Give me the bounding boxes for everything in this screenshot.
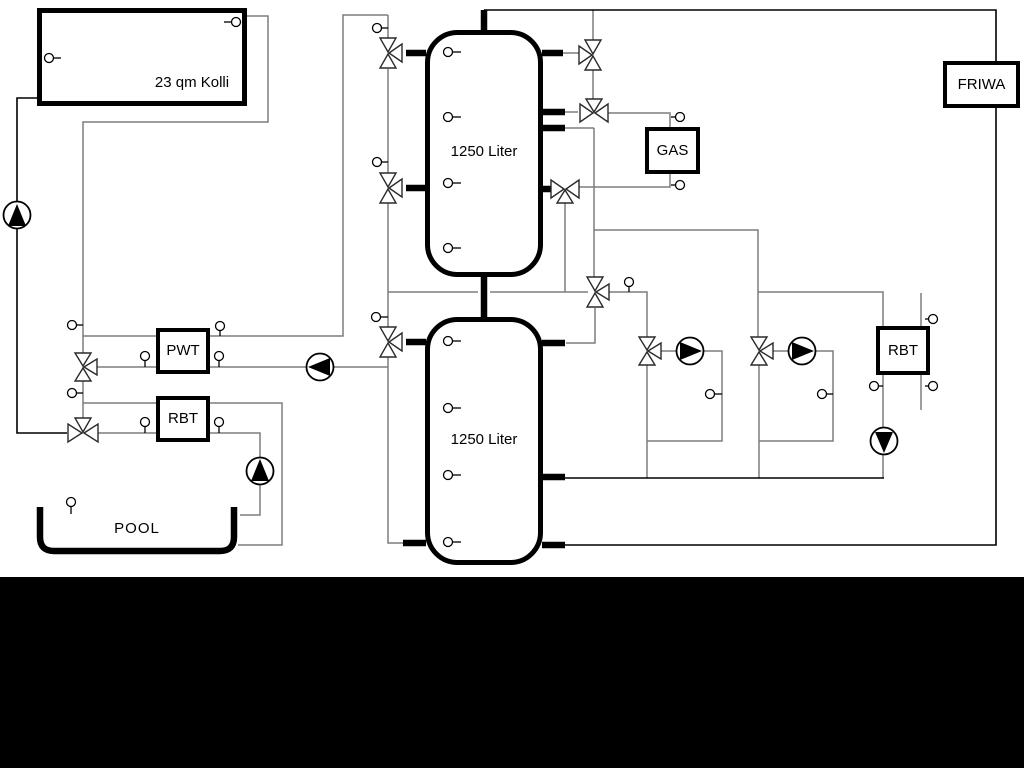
bottom-black-band <box>0 577 1024 768</box>
rbt-dhw-pump <box>871 428 898 455</box>
three-way-valve <box>75 353 97 381</box>
pool-label: POOL <box>77 519 197 539</box>
temperature-sensor <box>671 181 685 190</box>
rbt-pool-label: RBT <box>158 398 208 440</box>
temperature-sensor <box>372 313 389 322</box>
tank1-label: 1250 Liter <box>424 142 544 162</box>
tank1-right-stubs <box>542 53 565 189</box>
temperature-sensor <box>215 418 224 434</box>
solar-supply-pipe <box>17 98 67 433</box>
temperature-sensor <box>216 322 225 337</box>
pool-pump <box>247 458 274 485</box>
tank1-port-links <box>563 53 580 112</box>
three-way-valve <box>579 40 601 70</box>
temperature-sensor <box>141 352 150 368</box>
three-way-valve <box>639 337 661 365</box>
tank2-right-stubs <box>542 343 565 545</box>
three-way-valve <box>551 180 579 203</box>
rbt-dhw-label: RBT <box>878 328 928 373</box>
three-way-valve <box>68 418 98 442</box>
temperature-sensor <box>68 389 84 398</box>
mix-valve-out-line <box>566 292 647 343</box>
friwa-label: FRIWA <box>945 63 1018 106</box>
circuit1-loop <box>647 351 722 478</box>
gas-label: GAS <box>647 129 698 172</box>
temperature-sensor <box>671 113 685 122</box>
tank2-left-stubs <box>403 342 426 543</box>
temperature-sensor <box>141 418 150 434</box>
temperature-sensor <box>68 321 84 330</box>
tank2-label: 1250 Liter <box>424 430 544 450</box>
tank2-charge-pipe <box>388 357 404 543</box>
temperature-sensor <box>373 24 389 33</box>
three-way-valve <box>580 99 608 122</box>
hydraulic-schematic: 23 qm Kolli 1250 Liter 1250 Liter GAS FR… <box>0 0 1024 768</box>
top-friwa-loop-pipe <box>484 10 996 545</box>
three-way-valve <box>380 327 402 357</box>
pwt-label: PWT <box>158 330 208 372</box>
solar-pump <box>4 202 31 229</box>
temperature-sensor <box>925 382 938 391</box>
three-way-valve <box>587 277 609 307</box>
circuit1-pump <box>677 338 704 365</box>
collector-label: 23 qm Kolli <box>132 73 252 93</box>
gas-flow-pipe <box>608 113 670 129</box>
temperature-sensor <box>818 390 834 399</box>
temperature-sensor <box>373 158 389 167</box>
three-way-valve <box>380 38 402 68</box>
temperature-sensor <box>215 352 224 368</box>
temperature-sensor <box>925 315 938 324</box>
three-way-valve <box>380 173 402 203</box>
pwt-pump <box>307 354 334 381</box>
temperature-sensor <box>870 382 884 391</box>
temperature-sensor <box>625 278 634 293</box>
circuit-header-line <box>594 230 883 337</box>
circuit2-loop <box>759 351 833 478</box>
tank1-left-stubs <box>406 53 426 188</box>
pool-rbt-lower-pipe <box>97 433 260 515</box>
circuit2-pump <box>789 338 816 365</box>
three-way-valve <box>751 337 773 365</box>
temperature-sensor <box>706 390 723 399</box>
